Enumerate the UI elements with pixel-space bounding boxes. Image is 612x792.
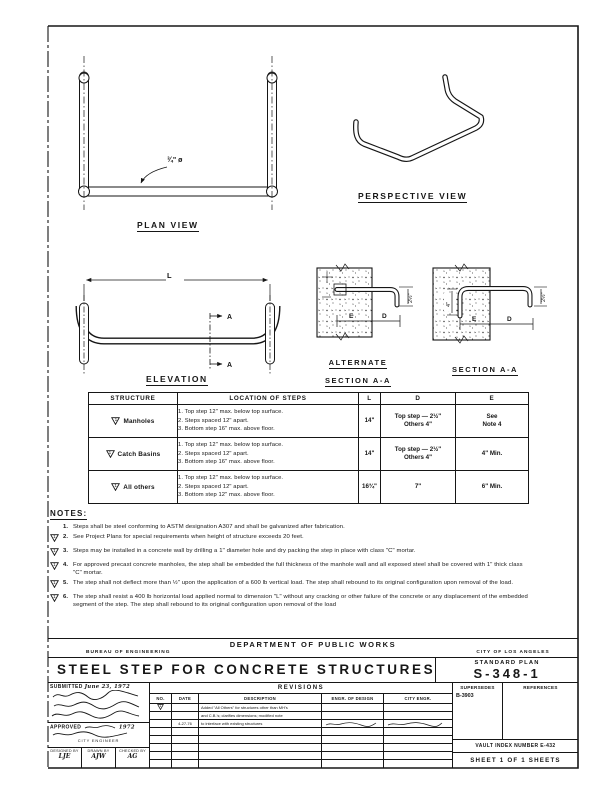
dim-e-value: 4" Min. — [456, 438, 529, 471]
alt-dim-drop: 2½" — [407, 293, 414, 303]
standard-plan-sheet: A A E D 2½" — [0, 0, 612, 792]
location-of-steps: 1. Top step 12" max. below top surface.2… — [178, 438, 359, 471]
submitted-box: SUBMITTED June 23, 1972 — [48, 683, 149, 723]
revision-flag-icon: 1 — [50, 580, 59, 588]
supersedes-value: B-3903 — [453, 690, 502, 699]
rev-col-desc: DESCRIPTION — [199, 694, 322, 703]
diameter-callout: ¾" ø — [167, 157, 182, 164]
bureau-label: BUREAU OF ENGINEERING — [86, 650, 170, 655]
dim-e-value: SeeNote 4 — [456, 405, 529, 438]
standard-plan-cell: STANDARD PLAN S-348-1 — [435, 658, 578, 682]
signature-column: SUBMITTED June 23, 1972 APPROVED 1972 CI… — [48, 683, 150, 768]
revision-flag-icon: 1 — [50, 548, 59, 556]
section-dim-embed: 4" — [446, 302, 452, 307]
table-header-row: STRUCTURE LOCATION OF STEPS L D E — [89, 393, 529, 405]
section-dim-drop: 2½" — [540, 292, 547, 302]
table-row: 1Catch Basins 1. Top step 12" max. below… — [89, 438, 529, 471]
revision-row — [150, 728, 452, 736]
revision-row — [150, 760, 452, 768]
revisions-heading: REVISIONS — [150, 683, 452, 694]
submitted-label: SUBMITTED — [50, 684, 83, 690]
rev-col-city: CITY ENGR. — [384, 694, 452, 703]
revision-flag-icon: 1 — [50, 594, 59, 602]
checked-by-value: AG — [116, 753, 149, 760]
revision-flag-icon: 1 — [50, 562, 59, 570]
dim-l-value: 14" — [359, 438, 381, 471]
note-item: 1 3. Steps may be installed in a concret… — [50, 548, 574, 559]
alt-dim-d: D — [382, 313, 387, 320]
notes-section: NOTES: 1. Steps shall be steel conformin… — [50, 503, 574, 609]
col-e: E — [456, 393, 529, 405]
perspective-view-label: PERSPECTIVE VIEW — [358, 191, 467, 203]
designed-by-cell: DESIGNED BY LJE — [48, 748, 82, 768]
table-row: 1Manholes 1. Top step 12" max. below top… — [89, 405, 529, 438]
elevation-label: ELEVATION — [146, 374, 208, 386]
drawn-by-cell: DRAWN BY AJW — [82, 748, 116, 768]
section-aa-label: SECTION A-A — [452, 365, 518, 376]
perspective-view-drawing — [356, 77, 482, 159]
location-of-steps: 1. Top step 12" max. below top surface.2… — [178, 471, 359, 504]
title-block-lower: SUBMITTED June 23, 1972 APPROVED 1972 CI… — [48, 683, 578, 768]
table-row: 1All others 1. Top step 12" max. below t… — [89, 471, 529, 504]
note-item: 1 5. The step shall not deflect more tha… — [50, 580, 574, 591]
note-item: 1. Steps shall be steel conforming to AS… — [50, 524, 574, 531]
references-cell: REFERENCES — [503, 683, 578, 739]
section-aa-drawing: 4" E D 2½" — [433, 264, 547, 343]
signature-squiggle — [324, 721, 378, 727]
revisions-block: REVISIONS NO. DATE DESCRIPTION ENGR. OF … — [150, 683, 453, 768]
dim-d-value: Top step — 2½"Others 4" — [381, 405, 456, 438]
revision-row — [150, 744, 452, 752]
dim-l-value: 14" — [359, 405, 381, 438]
signature-squiggle — [83, 724, 117, 730]
submitted-date: June 23, 1972 — [85, 684, 131, 690]
revision-flag-icon: 1 — [50, 534, 59, 542]
length-dim-label: L — [167, 271, 172, 280]
signature-squiggle — [50, 730, 130, 738]
dim-d-value: Top step — 2½"Others 4" — [381, 438, 456, 471]
rev-col-date: DATE — [172, 694, 199, 703]
elevation-drawing: A A — [79, 280, 277, 374]
notes-heading: NOTES: — [50, 509, 87, 520]
revision-flag-icon: 1 — [157, 704, 164, 710]
section-dim-e: E — [472, 316, 477, 323]
location-of-steps: 1. Top step 12" max. below top surface.2… — [178, 405, 359, 438]
references-label: REFERENCES — [503, 685, 578, 690]
revisions-header-row: NO. DATE DESCRIPTION ENGR. OF DESIGN CIT… — [150, 694, 452, 704]
dim-l-value: 16¾" — [359, 471, 381, 504]
col-structure: STRUCTURE — [89, 393, 178, 405]
rev-col-engr: ENGR. OF DESIGN — [322, 694, 384, 703]
city-label: CITY OF LOS ANGELES — [448, 650, 578, 655]
alt-section-label-line1: ALTERNATE — [329, 358, 388, 369]
approved-label: APPROVED — [50, 724, 81, 730]
alt-section-label: ALTERNATE SECTION A-A — [318, 352, 398, 388]
designed-by-value: LJE — [48, 753, 81, 760]
revision-flag-icon: 1 — [111, 417, 120, 425]
revision-flag-icon: 1 — [106, 450, 115, 458]
plan-view-label: PLAN VIEW — [137, 220, 199, 232]
note-item: 1 2. See Project Plans for special requi… — [50, 534, 574, 545]
alt-section-label-line2: SECTION A-A — [325, 376, 391, 387]
dim-d-value: 7" — [381, 471, 456, 504]
supersedes-references: SUPERSEDES B-3903 REFERENCES — [453, 683, 578, 739]
approved-box: APPROVED 1972 CITY ENGINEER — [48, 723, 149, 748]
approved-title: CITY ENGINEER — [50, 738, 147, 743]
drawn-by-value: AJW — [82, 753, 115, 760]
section-dim-d: D — [507, 316, 512, 323]
checked-by-cell: CHECKED BY AG — [116, 748, 149, 768]
revision-row — [150, 736, 452, 744]
structure-name: 1Catch Basins — [89, 450, 177, 458]
note-item: 1 4. For approved precast concrete manho… — [50, 562, 574, 577]
sheet-count: SHEET 1 OF 1 SHEETS — [453, 752, 578, 768]
credits-row: DESIGNED BY LJE DRAWN BY AJW CHECKED BY … — [48, 748, 149, 768]
plan-title: STEEL STEP FOR CONCRETE STRUCTURES — [48, 658, 435, 682]
approved-year: 1972 — [119, 724, 135, 730]
col-d: D — [381, 393, 456, 405]
revision-row: and C.B.'s; clarifies dimensions; modifi… — [150, 712, 452, 720]
plan-view-drawing — [79, 56, 278, 210]
vault-index: VAULT INDEX NUMBER E-432 — [453, 739, 578, 752]
alternate-section-drawing: E D 2½" — [317, 264, 414, 340]
revision-row: 4-27-76 to interface with existing struc… — [150, 720, 452, 728]
col-location: LOCATION OF STEPS — [178, 393, 359, 405]
note-item: 1 6. The step shall resist a 400 lb hori… — [50, 594, 574, 609]
supersedes-label: SUPERSEDES — [453, 685, 502, 690]
col-l: L — [359, 393, 381, 405]
dim-e-value: 6" Min. — [456, 471, 529, 504]
department-title: DEPARTMENT OF PUBLIC WORKS — [48, 640, 578, 649]
section-letter-top: A — [227, 314, 232, 321]
revision-flag-icon: 1 — [111, 483, 120, 491]
department-strip: DEPARTMENT OF PUBLIC WORKS BUREAU OF ENG… — [48, 638, 578, 657]
revision-row: 1 Added "All Others" for structures othe… — [150, 704, 452, 712]
signature-squiggle — [50, 710, 142, 719]
supersedes-cell: SUPERSEDES B-3903 — [453, 683, 503, 739]
revision-row — [150, 752, 452, 760]
plan-number: S-348-1 — [436, 666, 578, 681]
structure-name: 1Manholes — [89, 417, 177, 425]
structure-name: 1All others — [89, 483, 177, 491]
index-column: SUPERSEDES B-3903 REFERENCES VAULT INDEX… — [453, 683, 578, 768]
rev-col-no: NO. — [150, 694, 172, 703]
alt-dim-e: E — [349, 313, 354, 320]
title-row: STEEL STEP FOR CONCRETE STRUCTURES STAND… — [48, 657, 578, 683]
signature-squiggle — [386, 721, 444, 727]
signature-squiggle — [50, 700, 142, 710]
steps-location-table: STRUCTURE LOCATION OF STEPS L D E 1Manho… — [88, 392, 529, 504]
section-letter-bottom: A — [227, 362, 232, 369]
signature-squiggle — [50, 690, 142, 700]
